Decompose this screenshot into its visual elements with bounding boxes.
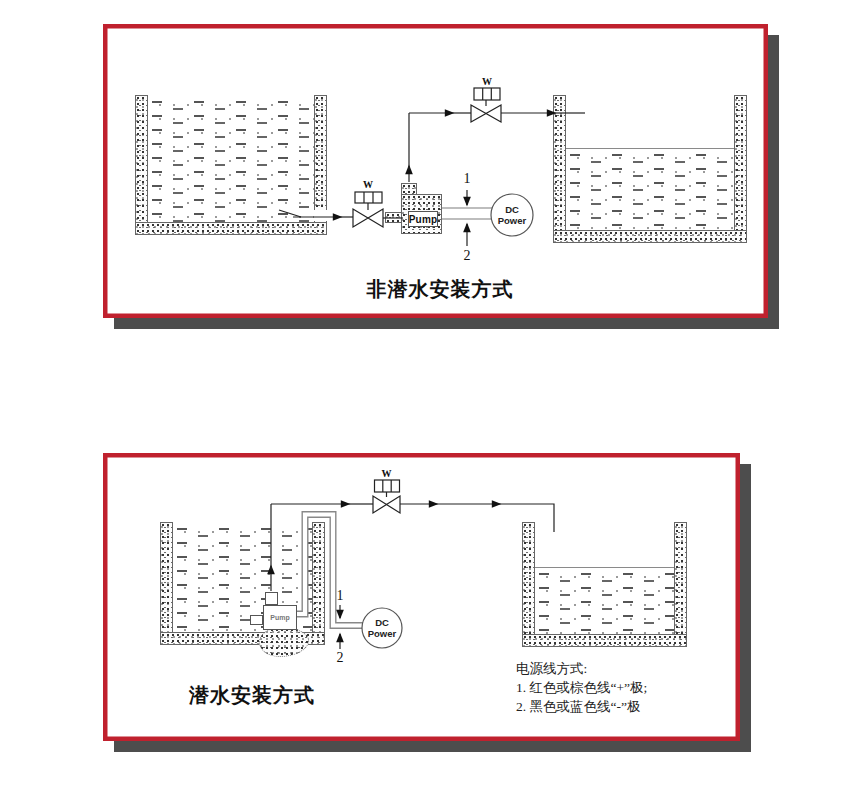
tank-wall-bottom <box>522 634 687 647</box>
tank-water <box>148 96 314 222</box>
valve-label: W <box>382 468 392 479</box>
source-tank <box>160 522 325 645</box>
receiving-tank <box>553 95 747 243</box>
dc-power-label: DC Power <box>360 618 404 639</box>
valve-actuator-cells <box>383 480 391 492</box>
tank-wall-left <box>135 95 148 223</box>
valve-actuator <box>375 480 400 492</box>
tank-wall-bottom <box>135 222 327 235</box>
tank-outlet-gap <box>314 210 327 221</box>
pump-inlet-port <box>250 615 263 625</box>
inlet-valve-body <box>353 209 383 227</box>
tank-wall-right <box>674 522 687 635</box>
pump-nameplate-text: Pump <box>270 614 289 621</box>
tank-wall-right <box>314 95 327 223</box>
outlet-valve-body <box>471 105 501 122</box>
dc-power-label: DC Power <box>490 205 534 226</box>
notes-line1: 1. 红色或棕色线“+”极; <box>516 678 734 697</box>
wire-positive-number: 1 <box>337 588 344 603</box>
wire-negative-number: 2 <box>464 248 471 263</box>
diagram-title: 潜水安装方式 <box>152 682 352 709</box>
outlet-valve-actuator-cells <box>483 88 492 100</box>
tank-wall-left <box>553 95 566 231</box>
dc-power-line1: DC <box>360 618 404 629</box>
inlet-valve-label: W <box>363 179 373 190</box>
pump-base-splash <box>259 627 309 657</box>
pump-outlet-port <box>265 592 278 605</box>
dc-power-line1: DC <box>490 205 534 216</box>
wire-negative-number: 2 <box>337 650 344 665</box>
tank-water <box>535 567 674 635</box>
source-tank <box>135 95 327 235</box>
notes-line2: 2. 黑色或蓝色线“-”极 <box>516 697 734 716</box>
wire-positive-number: 1 <box>464 171 471 186</box>
tank-wall-right <box>734 95 747 231</box>
dc-power-line2: Power <box>490 216 534 227</box>
page: { "top": { "title": "非潜水安装方式", "inlet_va… <box>0 0 854 794</box>
diagram-title: 非潜水安装方式 <box>330 276 550 303</box>
submersible-pump-body: Pump <box>263 605 297 630</box>
inlet-valve-actuator <box>355 192 382 203</box>
receiving-tank <box>522 522 687 647</box>
power-wire-notes: 电源线方式: 1. 红色或棕色线“+”极; 2. 黑色或蓝色线“-”极 <box>516 659 734 716</box>
pump-nameplate: Pump <box>408 211 438 227</box>
tank-wall-left <box>522 522 535 635</box>
tank-wall-right <box>312 522 325 633</box>
dc-power-line2: Power <box>360 629 404 640</box>
pump-nameplate-text: Pump <box>409 214 438 225</box>
non-submersible-diagram-panel: W W 1 2 Pump DC Power 非潜水安装方式 <box>103 24 768 318</box>
outlet-valve-actuator <box>474 88 500 100</box>
tank-water <box>566 148 734 231</box>
outlet-valve-label: W <box>482 76 492 87</box>
submersible-diagram-panel: Pump <box>103 453 740 741</box>
tank-wall-left <box>160 522 173 633</box>
inlet-valve-actuator-cells <box>364 192 373 203</box>
tank-wall-bottom <box>553 230 747 243</box>
notes-heading: 电源线方式: <box>516 659 734 678</box>
valve-body <box>373 496 400 513</box>
pipe-coupling <box>385 212 402 223</box>
